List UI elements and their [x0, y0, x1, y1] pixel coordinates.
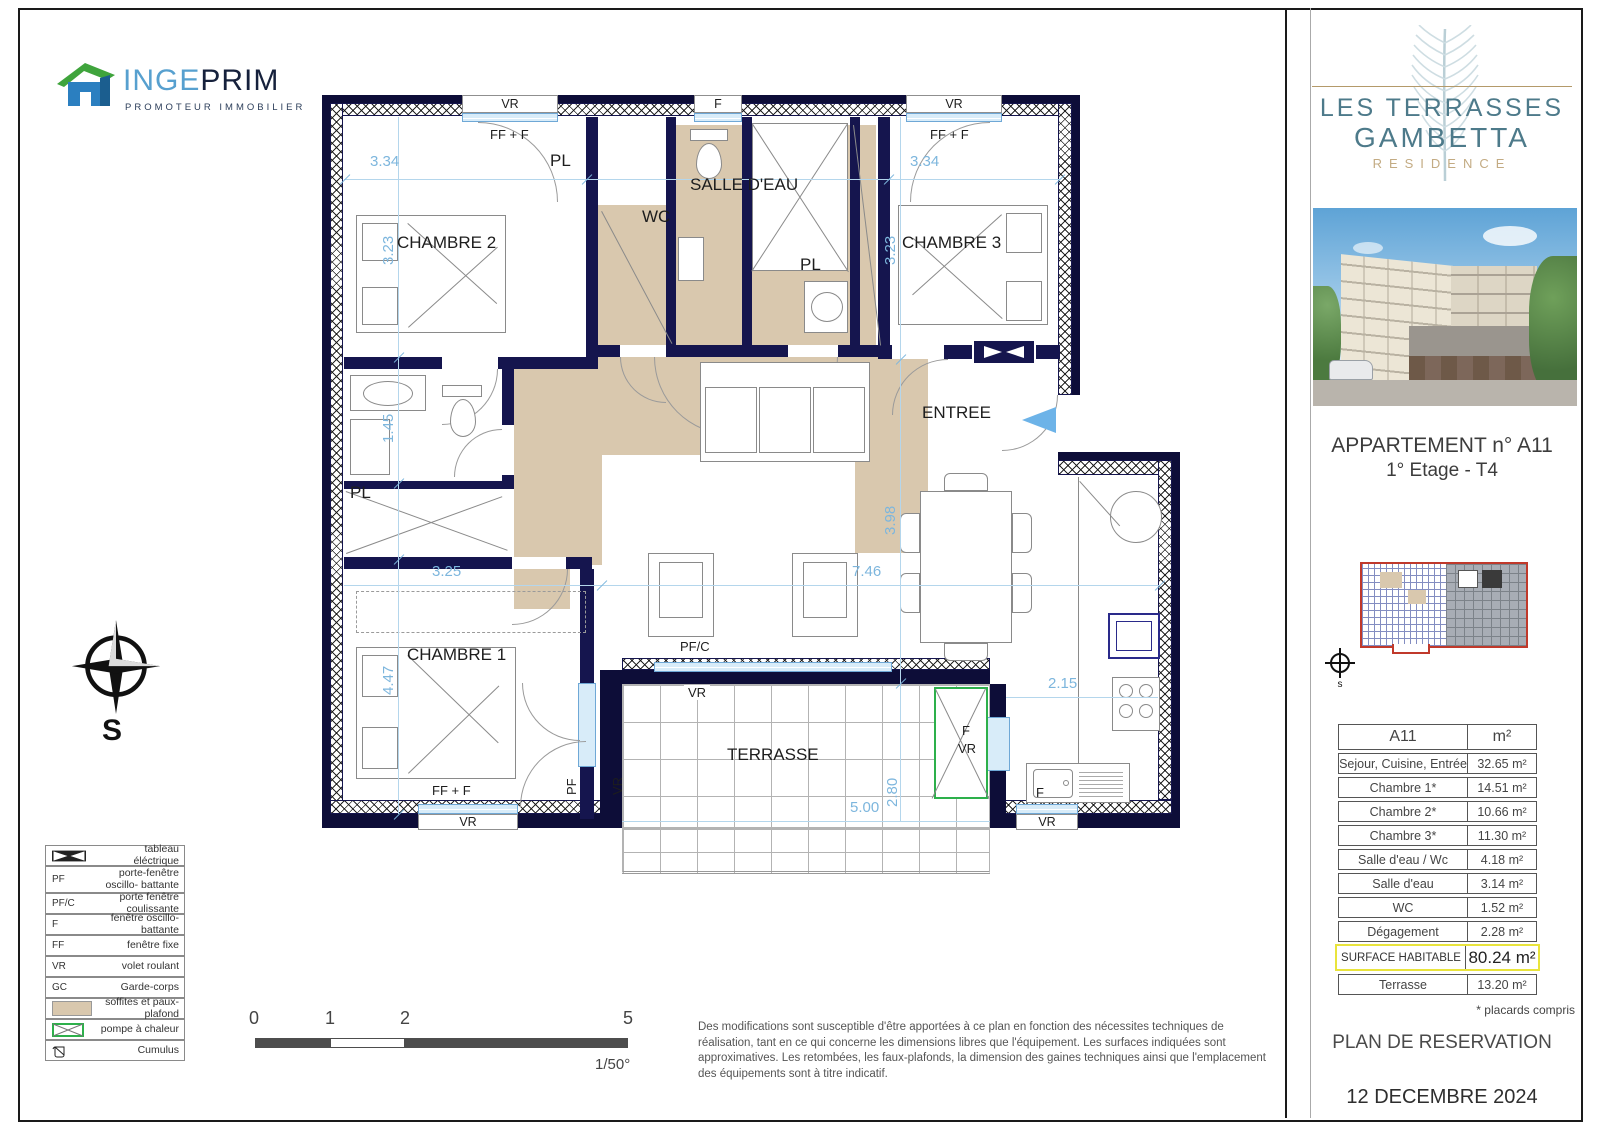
hob [1112, 677, 1160, 731]
mid-basin [350, 375, 426, 411]
table-row-surface-habitable: SURFACE HABITABLE 80.24 m² [1335, 944, 1540, 971]
sofa [700, 362, 870, 462]
table-row: Chambre 1*14.51 m² [1338, 777, 1537, 798]
win-label: VR [610, 777, 625, 795]
gold-rule [1312, 86, 1572, 87]
window-label-f: F [714, 97, 722, 111]
mini-compass-icon: s [1322, 648, 1358, 694]
dim-label: 3.23 [882, 236, 899, 265]
win-label: FF + F [490, 127, 529, 142]
toilet-wc [690, 129, 728, 141]
room-label-wc: WC [642, 207, 670, 227]
legend-row: GC Garde-corps [45, 977, 185, 998]
window-label-vr: VR [501, 97, 518, 111]
win-label: PF/C [680, 639, 710, 654]
win-label: F [962, 723, 970, 738]
placard-diagonal [346, 496, 502, 554]
dim-label: 3.34 [910, 153, 939, 170]
window-label-vr: VR [459, 815, 476, 829]
table-row: Chambre 2*10.66 m² [1338, 801, 1537, 822]
table-row-terrasse: Terrasse13.20 m² [1338, 974, 1537, 995]
sidebar-inner-line [1310, 8, 1311, 1118]
soffit-swatch [46, 999, 98, 1018]
dim-label: 2.15 [1048, 675, 1077, 692]
room-label-salle-deau: SALLE D'EAU [690, 175, 798, 195]
dim-label: 2.80 [884, 778, 901, 807]
dim-label: 3.25 [432, 563, 461, 580]
building-photo [1313, 208, 1577, 406]
sde-basin [804, 281, 848, 333]
room-label-placard: PL [350, 483, 371, 503]
win-label: VR [958, 741, 976, 756]
electrical-panel-icon [972, 339, 1036, 365]
table-row: Salle d'eau3.14 m² [1338, 873, 1537, 894]
legend-row: soffites et paux-plafond [45, 998, 185, 1019]
room-label-placard: PL [550, 151, 571, 171]
cumulus-icon [46, 1041, 98, 1060]
oven [1108, 613, 1160, 659]
compass-south-label: S [102, 714, 122, 748]
room-label-chambre2: CHAMBRE 2 [397, 233, 496, 253]
legend-row: PF/C porte fenêtre coulissante [45, 893, 185, 914]
ingeprim-logo: INGEPRIM PROMOTEUR IMMOBILIER [55, 58, 315, 120]
room-label-entree: ENTREE [922, 403, 991, 423]
apartment-subtitle: 1° Etage - T4 [1300, 460, 1584, 482]
win-label: PF [564, 778, 579, 795]
scale-tick: 0 [249, 1008, 259, 1029]
room-label-chambre1: CHAMBRE 1 [407, 645, 506, 665]
heat-pump-icon [46, 1020, 98, 1039]
armchair [792, 553, 858, 637]
dim-label: 3.23 [380, 236, 397, 265]
logo-text-prim: PRIM [200, 64, 279, 97]
dining-table [920, 491, 1012, 643]
win-label: VR [684, 685, 710, 700]
legend-row: Cumulus [45, 1040, 185, 1061]
table-row: Dégagement2.28 m² [1338, 921, 1537, 942]
floor-thumbnail [1360, 562, 1528, 648]
plan-date: 12 DECEMBRE 2024 [1300, 1086, 1584, 1109]
dim-label: 4.47 [380, 666, 397, 695]
mini-compass-label: s [1322, 679, 1358, 690]
dim-label: 7.46 [852, 563, 881, 580]
room-label-terrasse: TERRASSE [727, 745, 819, 765]
dim-label: 3.34 [370, 153, 399, 170]
legend-row: tableau éléctrique [45, 845, 185, 866]
apartment-title: APPARTEMENT n° A11 [1300, 434, 1584, 458]
dim-label: 3.98 [882, 506, 899, 535]
scale-bar: 0 1 2 5 1/50° [255, 1008, 645, 1078]
room-label-placard: PL [800, 255, 821, 275]
dim-label: 1.45 [380, 414, 397, 443]
scale-tick: 5 [623, 1008, 633, 1029]
shower [752, 123, 848, 271]
dim-label: 5.00 [850, 799, 879, 816]
wc-basin [678, 237, 704, 281]
wardrobe-chambre1 [356, 591, 586, 633]
electrical-panel-icon [46, 846, 98, 865]
win-label: FF + F [930, 127, 969, 142]
armchair [648, 553, 714, 637]
sidebar-divider [1285, 8, 1287, 1118]
plan-type-label: PLAN DE RESERVATION [1300, 1032, 1584, 1054]
legend-row: pompe à chaleur [45, 1019, 185, 1040]
residence-name-line2: GAMBETTA [1300, 122, 1584, 154]
placards-note: * placards compris [1400, 1003, 1575, 1017]
table-row: Sejour, Cuisine, Entrée32.65 m² [1338, 753, 1537, 774]
legend-row: VR volet roulant [45, 956, 185, 977]
table-row: WC1.52 m² [1338, 897, 1537, 918]
residence-name-line1: LES TERRASSES [1300, 94, 1584, 123]
win-label: FF + F [432, 783, 471, 798]
cumulus-heater [1110, 491, 1162, 543]
table-row: Salle d'eau / Wc4.18 m² [1338, 849, 1537, 870]
compass-rose: S [70, 618, 162, 748]
reservation-plan-sheet: INGEPRIM PROMOTEUR IMMOBILIER S [0, 0, 1600, 1131]
mid-toilet [442, 385, 482, 397]
logo-text-inge: INGE [123, 64, 200, 97]
house-icon [55, 60, 117, 121]
scale-tick: 2 [400, 1008, 410, 1029]
terrace-railing [622, 828, 990, 874]
legend-row: PF porte-fenêtre oscillo- battante [45, 866, 185, 893]
entry-arrow-icon [1022, 407, 1056, 433]
room-label-chambre3: CHAMBRE 3 [902, 233, 1001, 253]
table-header: A11 m² [1338, 724, 1537, 750]
residence-subtitle: RESIDENCE [1300, 156, 1584, 171]
table-row: Chambre 3*11.30 m² [1338, 825, 1537, 846]
kitchen-counter [1078, 477, 1079, 800]
disclaimer-text: Des modifications sont susceptible d'êtr… [698, 1020, 1276, 1082]
window-label-vr: VR [1038, 815, 1055, 829]
win-label: F [1036, 785, 1044, 800]
scale-ratio: 1/50° [595, 1056, 630, 1073]
scale-tick: 1 [325, 1008, 335, 1029]
legend-row: F fenêtre oscillo-battante [45, 914, 185, 935]
logo-tagline: PROMOTEUR IMMOBILIER [125, 102, 305, 113]
floor-plan: VR F VR VR VR [322, 95, 1180, 895]
legend-row: FF fenêtre fixe [45, 935, 185, 956]
window-label-vr: VR [945, 97, 962, 111]
